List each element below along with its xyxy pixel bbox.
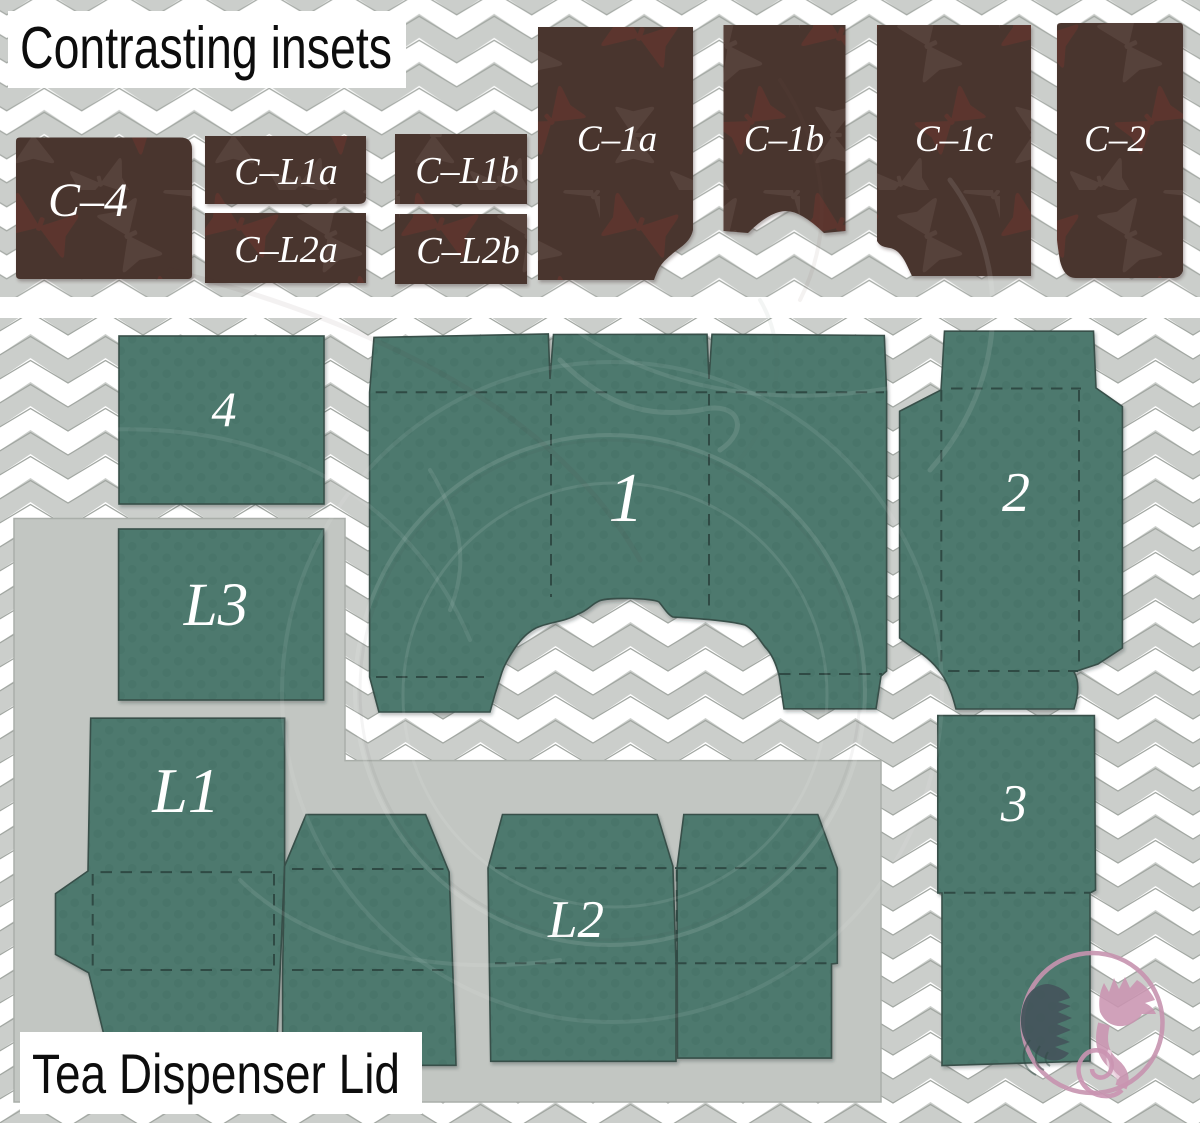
svg-text:Contrasting insets: Contrasting insets bbox=[20, 15, 392, 81]
svg-text:C–L1a: C–L1a bbox=[234, 151, 337, 193]
svg-text:C–4: C–4 bbox=[48, 174, 128, 227]
svg-text:C–1b: C–1b bbox=[744, 119, 824, 160]
svg-text:2: 2 bbox=[1002, 462, 1030, 524]
svg-text:Tea Dispenser Lid: Tea Dispenser Lid bbox=[32, 1042, 400, 1105]
svg-text:C–L1b: C–L1b bbox=[415, 150, 518, 192]
svg-text:3: 3 bbox=[1000, 775, 1028, 833]
svg-text:C–1a: C–1a bbox=[577, 119, 657, 160]
svg-text:C–1c: C–1c bbox=[915, 119, 994, 160]
svg-text:4: 4 bbox=[212, 381, 237, 437]
svg-text:C–L2b: C–L2b bbox=[416, 230, 519, 272]
svg-text:L1: L1 bbox=[151, 755, 220, 826]
svg-text:C–L2a: C–L2a bbox=[234, 229, 337, 271]
svg-text:L3: L3 bbox=[183, 572, 248, 639]
svg-text:C–2: C–2 bbox=[1084, 119, 1146, 160]
svg-text:1: 1 bbox=[609, 460, 644, 537]
